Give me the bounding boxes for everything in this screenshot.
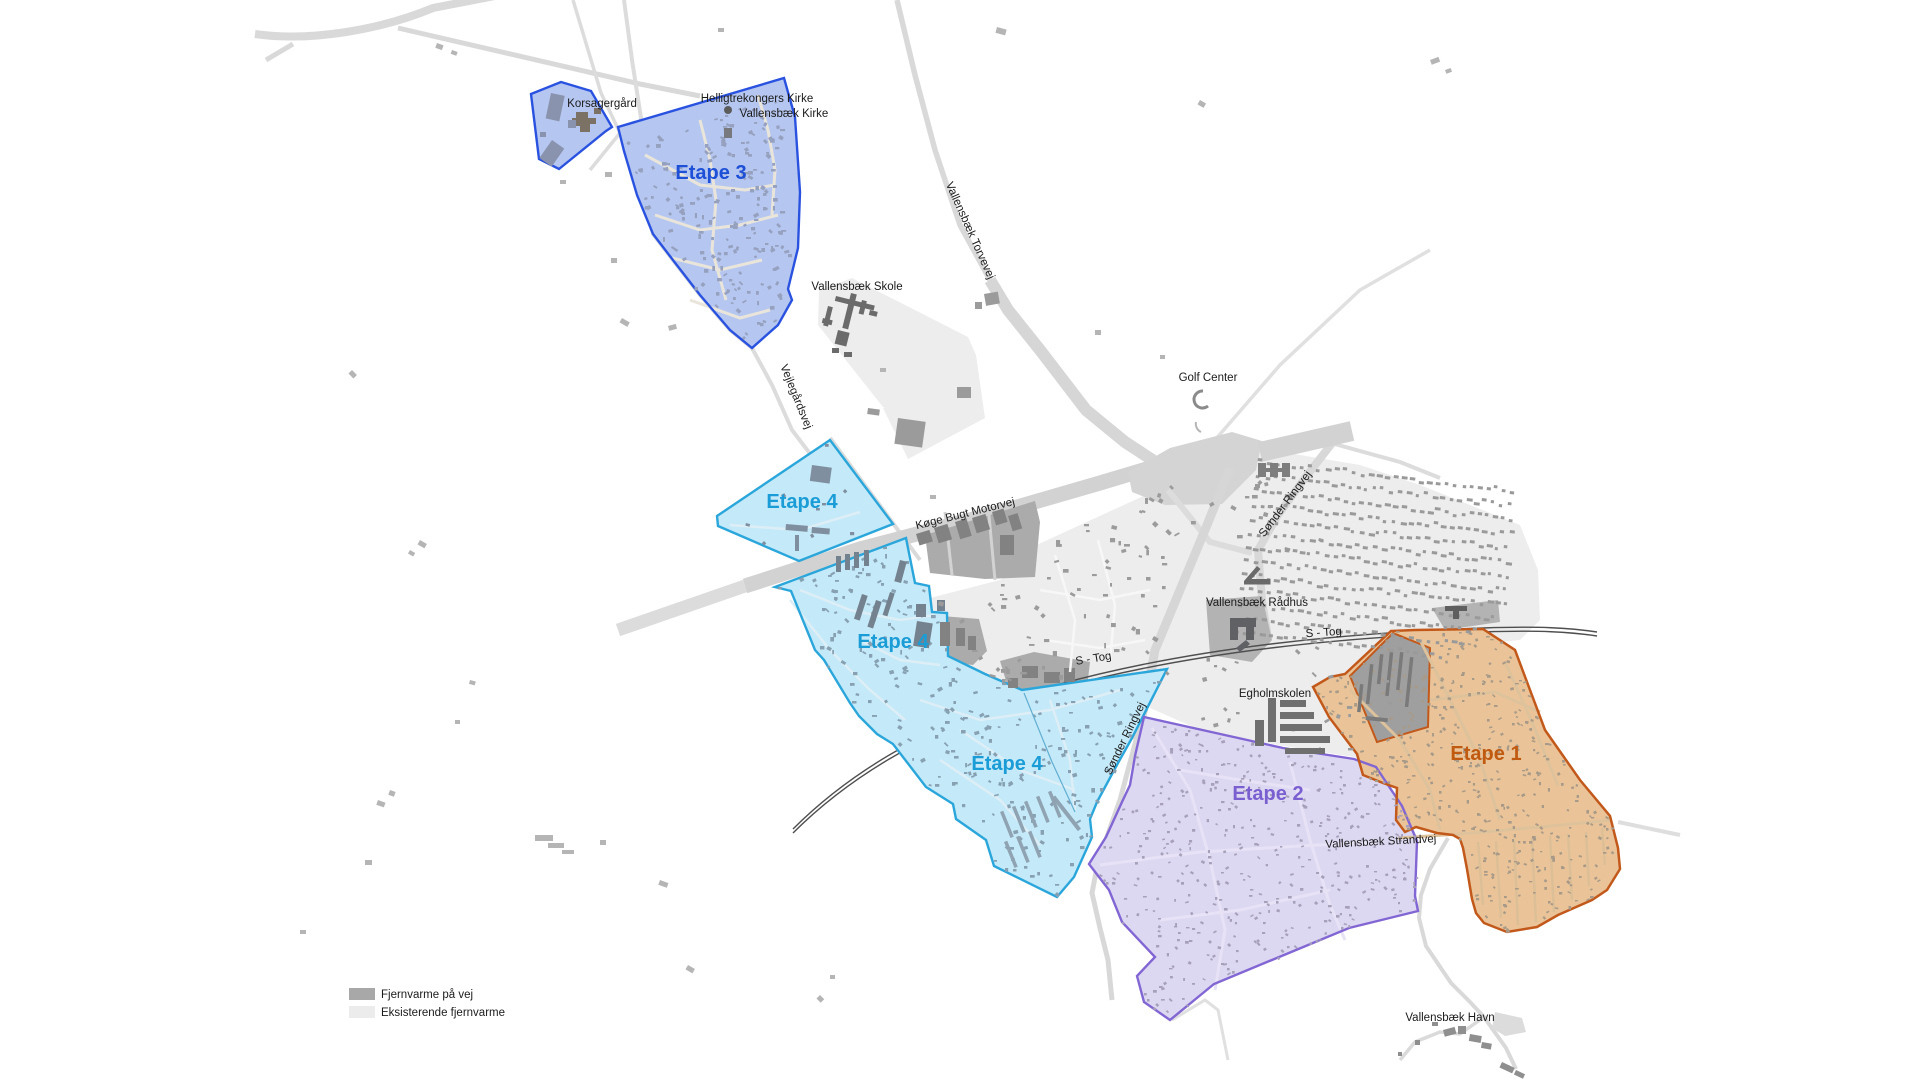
svg-text:Helligtrekongers Kirke: Helligtrekongers Kirke xyxy=(701,93,814,105)
svg-text:Vallensbæk Kirke: Vallensbæk Kirke xyxy=(740,108,829,120)
svg-text:Egholmskolen: Egholmskolen xyxy=(1239,688,1311,700)
svg-text:Etape 4: Etape 4 xyxy=(971,753,1043,775)
svg-text:Vallensbæk Rådhus: Vallensbæk Rådhus xyxy=(1206,597,1308,609)
svg-text:Golf Center: Golf Center xyxy=(1179,372,1238,384)
svg-text:Etape 2: Etape 2 xyxy=(1232,783,1303,805)
svg-text:Korsagergård: Korsagergård xyxy=(567,98,637,110)
svg-text:Etape 1: Etape 1 xyxy=(1450,743,1521,765)
svg-text:S - Tog: S - Tog xyxy=(1305,626,1342,640)
svg-text:Eksisterende fjernvarme: Eksisterende fjernvarme xyxy=(381,1007,505,1019)
svg-text:Etape 4: Etape 4 xyxy=(857,631,929,653)
svg-text:Etape 4: Etape 4 xyxy=(766,491,838,513)
svg-text:Vallensbæk Skole: Vallensbæk Skole xyxy=(811,281,902,293)
svg-text:Vallensbæk Havn: Vallensbæk Havn xyxy=(1405,1012,1494,1024)
svg-text:Fjernvarme på vej: Fjernvarme på vej xyxy=(381,989,473,1001)
svg-text:Etape 3: Etape 3 xyxy=(675,162,746,184)
